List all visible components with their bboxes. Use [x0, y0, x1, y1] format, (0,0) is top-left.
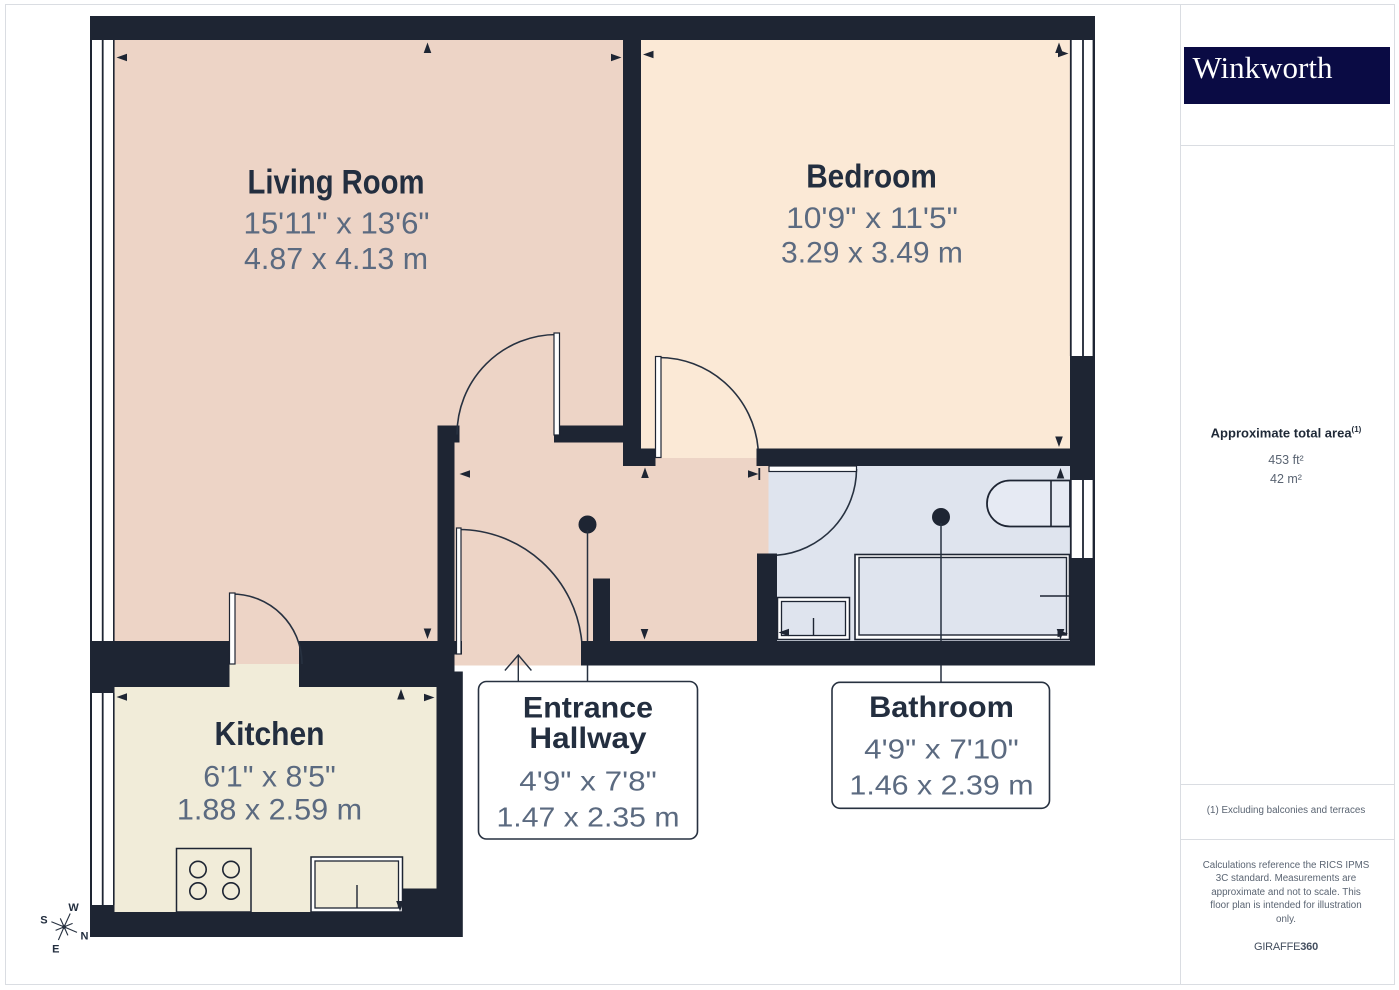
- svg-text:1.88 x 2.59 m: 1.88 x 2.59 m: [177, 794, 362, 827]
- svg-text:Bathroom: Bathroom: [869, 691, 1014, 724]
- svg-text:4.87 x 4.13 m: 4.87 x 4.13 m: [244, 242, 428, 276]
- svg-text:S: S: [40, 915, 47, 927]
- svg-text:Living Room: Living Room: [248, 163, 425, 201]
- svg-text:3.29 x 3.49 m: 3.29 x 3.49 m: [781, 236, 963, 269]
- svg-text:N: N: [81, 931, 89, 943]
- svg-text:6'1" x 8'5": 6'1" x 8'5": [203, 760, 336, 793]
- svg-text:Hallway: Hallway: [529, 722, 647, 755]
- svg-text:10'9" x 11'5": 10'9" x 11'5": [786, 202, 958, 235]
- svg-text:4'9" x 7'10": 4'9" x 7'10": [864, 733, 1019, 764]
- svg-text:1.46 x 2.39 m: 1.46 x 2.39 m: [849, 769, 1033, 800]
- svg-text:W: W: [68, 902, 79, 914]
- svg-text:1.47 x 2.35 m: 1.47 x 2.35 m: [497, 802, 680, 833]
- svg-text:Kitchen: Kitchen: [215, 715, 325, 752]
- svg-text:E: E: [52, 944, 59, 956]
- svg-text:Bedroom: Bedroom: [806, 159, 937, 196]
- svg-text:4'9" x 7'8": 4'9" x 7'8": [519, 765, 657, 796]
- svg-text:Entrance: Entrance: [523, 692, 653, 725]
- svg-text:15'11" x 13'6": 15'11" x 13'6": [244, 206, 430, 240]
